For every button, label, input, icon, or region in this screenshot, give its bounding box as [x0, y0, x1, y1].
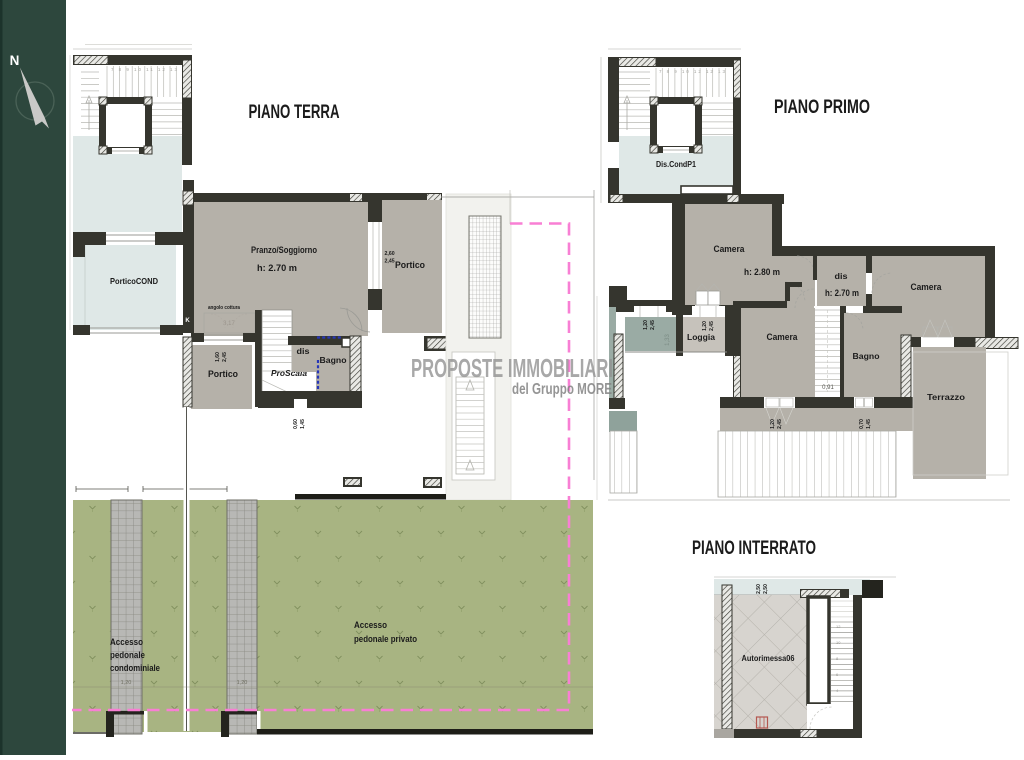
svg-text:2,45: 2,45	[709, 321, 715, 331]
svg-text:Accesso: Accesso	[354, 620, 387, 630]
svg-text:condominiale: condominiale	[110, 663, 160, 673]
svg-text:angolo cottura: angolo cottura	[208, 305, 241, 311]
svg-text:1,20: 1,20	[121, 680, 132, 686]
svg-text:12: 12	[836, 624, 841, 629]
svg-text:pedonale: pedonale	[110, 650, 145, 660]
svg-text:Accesso: Accesso	[110, 637, 143, 647]
svg-text:2,50: 2,50	[756, 584, 762, 594]
svg-text:PIANO INTERRATO: PIANO INTERRATO	[692, 537, 816, 559]
svg-text:Bagno: Bagno	[853, 351, 880, 361]
svg-text:1,60: 1,60	[215, 352, 221, 362]
svg-text:1,20: 1,20	[237, 680, 248, 686]
svg-text:0,91: 0,91	[822, 385, 834, 391]
svg-text:1,33: 1,33	[665, 334, 671, 346]
svg-text:2,45: 2,45	[385, 259, 395, 265]
svg-text:Camera: Camera	[911, 282, 943, 292]
svg-text:1,20: 1,20	[770, 419, 776, 429]
svg-text:Loggia: Loggia	[687, 332, 715, 342]
svg-text:Autorimessa06: Autorimessa06	[742, 653, 795, 663]
svg-text:dis: dis	[835, 272, 849, 281]
svg-text:h: 2.70 m: h: 2.70 m	[257, 263, 297, 273]
svg-text:K: K	[185, 318, 190, 324]
svg-text:2,60: 2,60	[385, 251, 395, 257]
svg-text:Bagno: Bagno	[320, 355, 347, 365]
svg-text:2,45: 2,45	[650, 320, 656, 330]
svg-text:2,50: 2,50	[763, 584, 769, 594]
svg-text:1,20: 1,20	[643, 320, 649, 330]
svg-text:Dis.CondP1: Dis.CondP1	[656, 160, 696, 169]
svg-text:10: 10	[836, 640, 841, 645]
svg-text:h: 2.70 m: h: 2.70 m	[825, 288, 859, 298]
svg-text:Portico: Portico	[395, 260, 425, 270]
svg-text:PIANO PRIMO: PIANO PRIMO	[774, 96, 870, 118]
svg-text:2,45: 2,45	[222, 352, 228, 362]
svg-text:Pranzo/Soggiorno: Pranzo/Soggiorno	[251, 245, 317, 255]
svg-text:del Gruppo MORE: del Gruppo MORE	[512, 381, 612, 398]
svg-text:dis: dis	[297, 347, 311, 356]
svg-text:PROPOSTE IMMOBILIARI: PROPOSTE IMMOBILIARI	[411, 355, 613, 383]
svg-text:1,20: 1,20	[702, 321, 708, 331]
svg-text:Portico: Portico	[208, 369, 238, 379]
svg-text:1,45: 1,45	[300, 419, 306, 429]
svg-text:PorticoCOND: PorticoCOND	[110, 276, 158, 286]
svg-text:1,45: 1,45	[866, 419, 872, 429]
svg-text:h: 2.80 m: h: 2.80 m	[744, 267, 780, 277]
svg-text:Camera: Camera	[767, 332, 799, 342]
svg-text:Terrazzo: Terrazzo	[927, 392, 965, 402]
svg-text:0,60: 0,60	[293, 419, 299, 429]
svg-text:N: N	[10, 53, 20, 68]
svg-text:pedonale privato: pedonale privato	[354, 634, 417, 644]
svg-text:2,45: 2,45	[777, 419, 783, 429]
svg-text:Camera: Camera	[714, 244, 746, 254]
svg-text:0,70: 0,70	[859, 419, 865, 429]
svg-text:PIANO TERRA: PIANO TERRA	[249, 101, 340, 123]
